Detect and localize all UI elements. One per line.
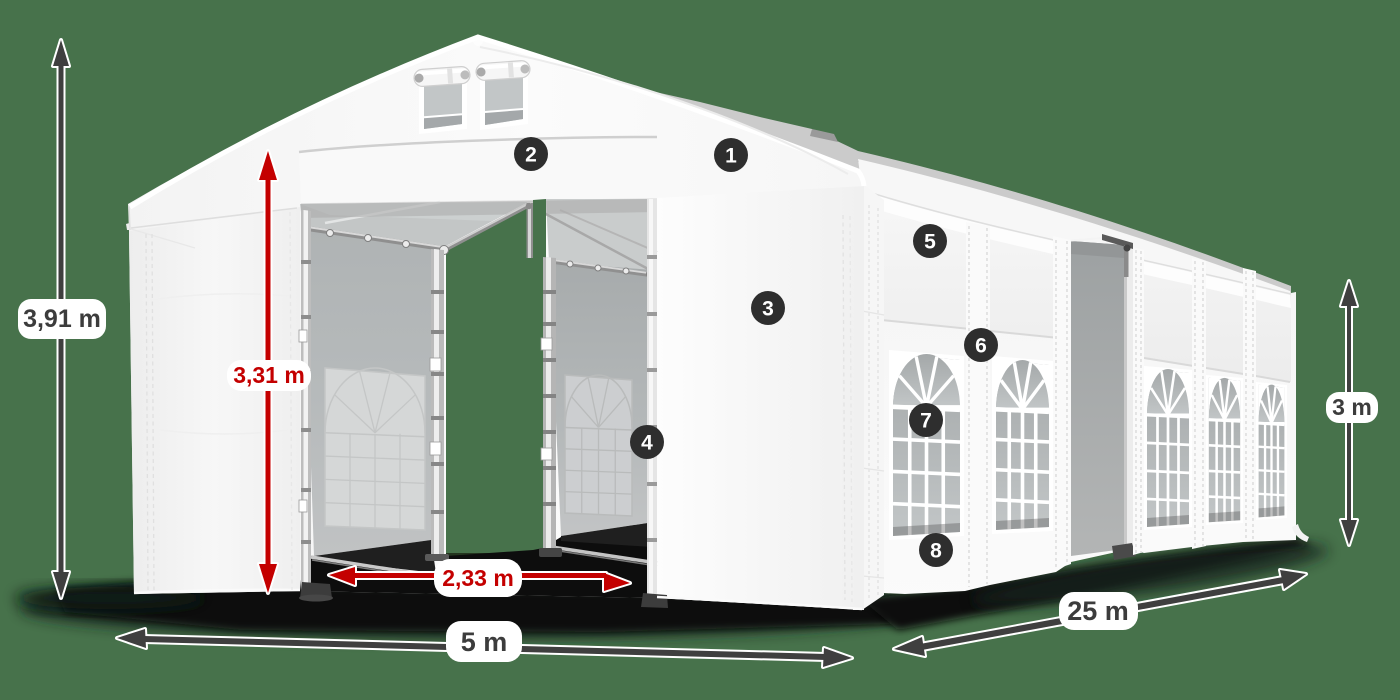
svg-text:25 m: 25 m <box>1067 596 1129 626</box>
svg-text:3 m: 3 m <box>1332 394 1372 420</box>
svg-text:3,31 m: 3,31 m <box>233 362 305 388</box>
svg-text:1: 1 <box>725 145 737 168</box>
svg-text:8: 8 <box>930 540 942 563</box>
svg-text:4: 4 <box>641 432 653 455</box>
svg-text:2,33 m: 2,33 m <box>442 565 514 591</box>
svg-text:7: 7 <box>920 410 932 433</box>
svg-text:5 m: 5 m <box>461 627 508 657</box>
svg-text:2: 2 <box>525 144 537 167</box>
svg-text:3: 3 <box>762 298 774 321</box>
svg-text:6: 6 <box>975 335 987 358</box>
svg-text:3,91 m: 3,91 m <box>23 305 101 333</box>
svg-text:5: 5 <box>924 231 936 254</box>
